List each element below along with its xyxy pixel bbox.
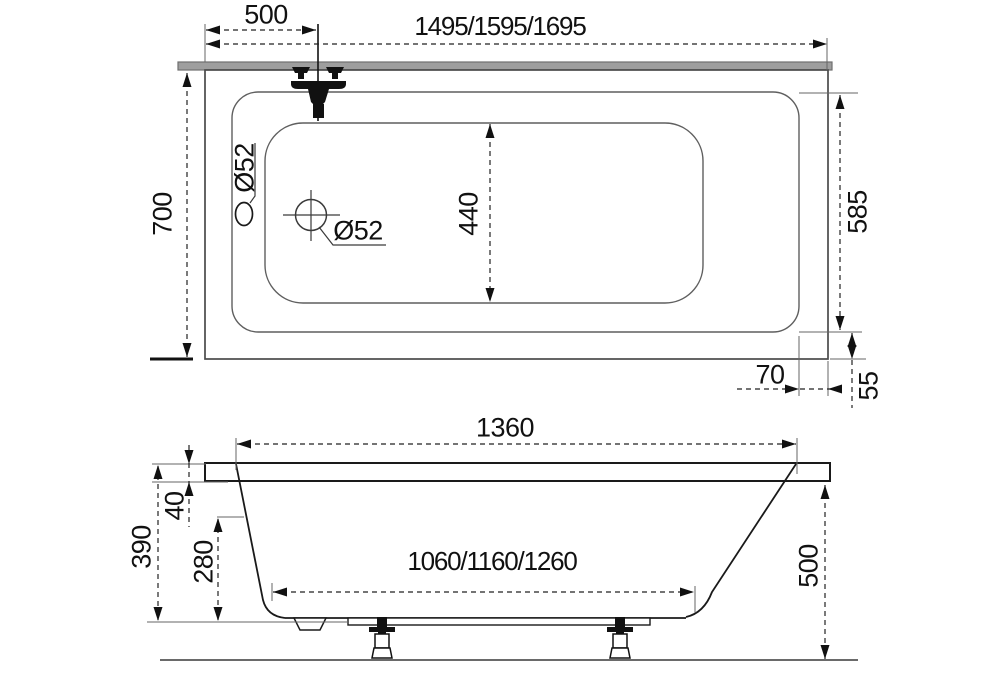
top-view [178,24,832,359]
support-rail [348,618,650,625]
dim-faucet-offset: 500 [244,2,288,29]
dim-inner-width: 585 [845,190,872,234]
front-wall-profile [236,464,285,618]
dim-basin-width: 440 [456,192,483,236]
dim-overall-height: 500 [796,544,823,588]
dim-rim-offset-side: 70 [755,362,784,389]
overflow-hole-icon [236,203,253,226]
drain-fitting-icon [294,618,326,630]
wall-bar [178,62,832,70]
dim-total-width: 700 [150,192,177,236]
dim-rim-thickness: 40 [162,491,189,520]
drawing-canvas: 500 1495/1595/1695 700 585 440 Ø52 Ø52 7… [0,0,990,675]
dim-shell-depth: 390 [129,525,156,569]
back-wall-profile [686,464,796,617]
dim-rim-offset-end: 55 [856,371,883,400]
dim-overflow-diameter: Ø52 [232,143,259,193]
rim-profile [205,463,830,481]
dim-rim-length: 1360 [476,415,534,442]
dim-total-length: 1495/1595/1695 [414,13,585,39]
dim-base-length: 1060/1160/1260 [407,548,576,574]
dim-drain-diameter: Ø52 [333,218,383,245]
dim-basin-depth: 280 [191,540,218,584]
